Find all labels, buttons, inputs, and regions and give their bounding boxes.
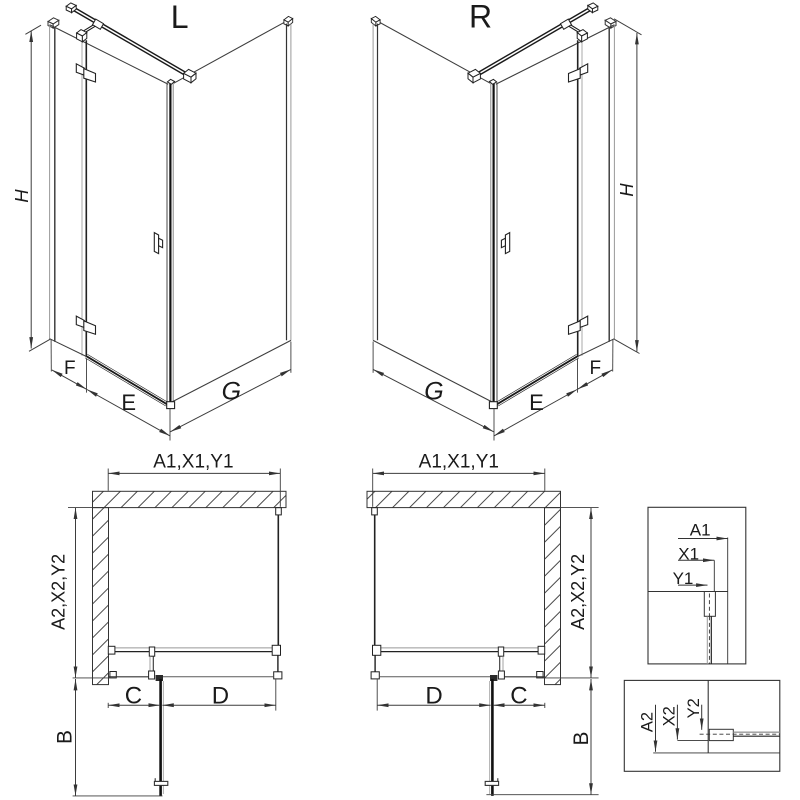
svg-text:A2,X2,Y2: A2,X2,Y2 (49, 554, 69, 630)
svg-text:L: L (171, 0, 189, 35)
svg-text:C: C (510, 682, 527, 709)
svg-text:H: H (616, 183, 637, 197)
svg-text:A2: A2 (639, 712, 657, 732)
svg-text:G: G (222, 377, 241, 405)
svg-text:A2,X2,Y2: A2,X2,Y2 (568, 554, 588, 630)
svg-text:Y1: Y1 (673, 569, 694, 588)
svg-text:D: D (212, 682, 229, 709)
svg-text:A1,X1,Y1: A1,X1,Y1 (153, 451, 233, 472)
svg-text:C: C (125, 682, 142, 709)
svg-text:X2: X2 (661, 706, 679, 726)
svg-text:F: F (64, 358, 76, 379)
svg-text:A1: A1 (690, 521, 711, 540)
svg-text:H: H (11, 189, 32, 203)
svg-text:X1: X1 (678, 544, 699, 563)
svg-text:E: E (529, 390, 544, 415)
svg-text:B: B (570, 731, 593, 745)
svg-text:Y2: Y2 (685, 698, 703, 718)
svg-text:R: R (469, 0, 492, 35)
svg-text:B: B (54, 730, 77, 744)
svg-text:D: D (425, 682, 442, 709)
svg-text:G: G (424, 377, 443, 405)
svg-text:A1,X1,Y1: A1,X1,Y1 (419, 451, 499, 472)
svg-text:F: F (589, 358, 601, 379)
svg-text:E: E (121, 390, 136, 415)
